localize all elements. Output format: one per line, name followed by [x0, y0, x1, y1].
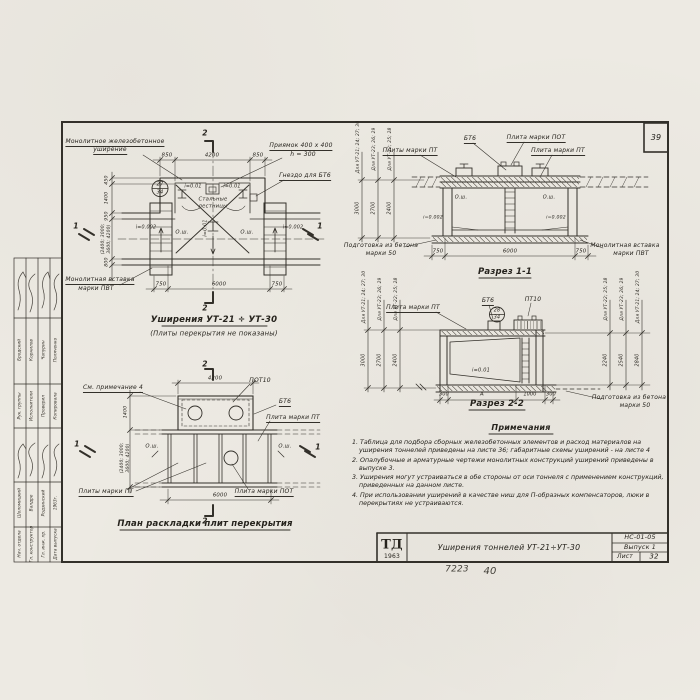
title-block-sheet-label: Лист [617, 554, 633, 560]
dim-a-s22: А [480, 392, 484, 398]
label-pot-plan: Плита марки ПОТ [235, 489, 294, 497]
slope-wall-right: i=0.002 [283, 227, 304, 232]
dim-6000-s11: 6000 [503, 249, 517, 254]
note-item-1: 1. Таблица для подбора сборных железобет… [352, 439, 670, 456]
label-bt6-s11: БТ6 [464, 136, 476, 144]
slope-label-s22: i=0.01 [472, 369, 490, 374]
dim-6000-plan: 6000 [213, 493, 227, 498]
stamp-role-5: Нач. отдела [18, 530, 23, 557]
chain-label-3-s11: Для УТ-22; 25; 28 [389, 127, 393, 170]
section-mark-1-left-plan: 1 [74, 440, 79, 448]
label-pot10: ПОТ10 [249, 378, 271, 384]
logo-td: ТД [381, 539, 403, 552]
slope-label-left: i=0.01 [184, 186, 201, 191]
label-pot-s11: Плита марки ПОТ [507, 135, 566, 143]
stamp-name-2: Корнилов [30, 339, 35, 361]
slope-wall-left: i=0.002 [136, 227, 157, 232]
corner-page-number: 39 [651, 134, 662, 142]
dim-bot-6000: 6000 [212, 282, 226, 287]
footer-number-2: 40 [483, 567, 496, 577]
dim-left-1400: 1400 [106, 192, 111, 205]
stamp-role-8: Дата выпуска [54, 528, 59, 559]
dim-widths-line2-plan: 3600; 4200) [127, 443, 131, 472]
chain-value-3000-s11: 3000 [357, 201, 362, 214]
chain-left-value-1-s22: 3000 [363, 353, 368, 366]
axis-mark-right-plan: О.ш. [278, 444, 291, 449]
chain-right-value-3-s22: 2840 [637, 353, 642, 366]
dim-top-850-right: 850 [253, 153, 264, 158]
label-pt-right-s11: Плита марки ПТ [531, 148, 585, 156]
dim-top-850-left: 850 [162, 153, 173, 158]
detail-marker-number-s22: 28 [494, 309, 501, 314]
dim-bot-750-right: 750 [272, 282, 283, 287]
axis-mark-right: О.ш. [240, 230, 253, 235]
chain-left-label-2-s22: Для УТ-23; 26; 29 [379, 277, 383, 320]
section-mark-1-left: 1 [73, 222, 78, 230]
chain-label-2-s11: Для УТ-23; 26; 29 [373, 127, 377, 170]
label-insert-line2-s11: марки ПВТ [613, 251, 649, 257]
dim-left-450: 450 [106, 175, 111, 184]
axis-mark-left-s11: О.ш. [455, 196, 468, 201]
chain-left-label-1-s22: Для УТ-21; 24; 27; 30 [363, 271, 367, 323]
slab-hatch-1-1 [441, 177, 579, 187]
dim-bot-750-left: 750 [156, 282, 167, 287]
stamp-role-7: Гл. инж. пр. [42, 531, 47, 558]
label-prep-line2-s11: марки 50 [366, 251, 397, 257]
chain-value-2700-s11: 2700 [373, 201, 378, 214]
stamp-role-6: Гл. конструктор [30, 526, 35, 563]
label-steel-ladders-line1: Стальные [198, 197, 227, 202]
dim-1400-plan: 1400 [125, 406, 130, 419]
chain-right-label-2-s22: Для УТ-23; 26; 29 [621, 277, 625, 320]
dim-left-950: 950 [106, 211, 111, 220]
dim-left-800: 800 [106, 257, 111, 266]
stamp-name-5: Шоломицкий [18, 488, 23, 518]
footer-number: 7223 [445, 566, 469, 575]
label-prep-line1-s11: Подготовка из бетона [344, 243, 418, 249]
base-hatch-1-1 [433, 237, 587, 242]
label-see-note: См. примечание 4 [83, 385, 143, 393]
label-prep-line1-s22: Подготовка из бетона [592, 395, 666, 401]
logo-year: 1963 [384, 554, 400, 560]
title-block-sheet-number: 32 [649, 554, 658, 561]
dim-left-widths-line1: (2400; 3000; [102, 224, 106, 255]
detail-marker-sheet: 34 [157, 190, 164, 195]
label-insert-line1: Монолитная вставка [65, 277, 134, 285]
section-mark-1-right-plan: 1 [315, 443, 320, 451]
drawing-sheet: Монолитное железобетонное уширение Приям… [0, 0, 700, 700]
plan-slabs-title: План раскладки плит перекрытия [117, 520, 292, 529]
dim-top-4200: 4200 [205, 153, 219, 158]
label-bt6-plan: БТ6 [279, 399, 291, 407]
stamp-role-3: Проверил [42, 395, 47, 417]
slab-hatch-2-2 [441, 331, 544, 335]
chain-right-label-3-s22: Для УТ-21; 24; 27; 30 [637, 271, 641, 323]
note-item-4: 4. При использовании уширений в качестве… [352, 492, 670, 509]
dim-widths-line1-plan: (2400; 3000; [121, 443, 125, 474]
pt10-hatch [515, 321, 541, 329]
chain-value-2400-s11: 2400 [389, 201, 394, 214]
stamp-role-4: Копировала [54, 392, 59, 419]
notes-block: 1. Таблица для подбора сборных железобет… [352, 439, 670, 509]
title-block-issue: Выпуск 1 [624, 544, 656, 550]
label-socket-bt6: Гнездо для БТ6 [279, 173, 331, 181]
detail-marker-number: 27 [157, 183, 164, 188]
stamp-name-7: Родзинский [42, 490, 47, 517]
dim-4200-plan: 4200 [208, 376, 222, 381]
label-pt-plural-plan: Плиты марки ПТ [79, 489, 134, 497]
label-pt10-s22: ПТ10 [525, 297, 542, 303]
stamp-name-1: Бродский [18, 339, 23, 361]
chain-left-label-3-s22: Для УТ-22; 25; 28 [395, 277, 399, 320]
dim-left-widths-line2: 3600; 4200) [108, 224, 112, 253]
label-pt-plan: Плита марки ПТ [266, 415, 320, 423]
section-mark-2-top-plan: 2 [202, 360, 207, 368]
note-item-3: 3. Уширения могут устраиваться в обе сто… [352, 474, 670, 491]
stamp-name-6: Валдре [30, 495, 35, 512]
base-hatch-2-2 [437, 386, 555, 391]
note-item-2: 2. Опалубочные и арматурные чертежи моно… [352, 457, 670, 474]
label-steel-ladders-line2: лестницы [199, 204, 228, 209]
dim-750-left-s11: 750 [433, 249, 444, 254]
plan-widening-subtitle: (Плиты перекрытия не показаны) [150, 331, 277, 338]
label-pit-line1: Приямок 400 x 400 [269, 143, 332, 151]
chain-right-value-2-s22: 2540 [621, 353, 626, 366]
stamp-name-8: 1963г. [54, 496, 59, 511]
slope-label-axis: i=0.01 [205, 219, 210, 236]
axis-mark-left-plan: О.ш. [145, 444, 158, 449]
slope-right-s11: i=0.002 [546, 217, 566, 222]
plan-widening-drawing [79, 141, 324, 326]
detail-marker-sheet-s22: 34 [494, 316, 501, 321]
notes-heading: Примечания [491, 424, 550, 432]
stamp-role-1: Рук. группы [18, 392, 23, 419]
slope-left-s11: i=0.002 [423, 217, 443, 222]
title-block-title: Уширения тоннелей УТ-21÷УТ-30 [438, 544, 581, 552]
axis-mark-right-s11: О.ш. [543, 196, 556, 201]
label-pit-line2: h = 300 [290, 152, 316, 158]
axis-mark-left: О.ш. [175, 230, 188, 235]
dim-750-right-s11: 750 [576, 249, 587, 254]
section-mark-1-right: 1 [317, 222, 322, 230]
stamp-name-3: Чапурин [42, 340, 47, 359]
signatures [18, 272, 59, 478]
chain-right-value-1-s22: 2240 [605, 353, 610, 366]
title-block-code: НС-01-05 [624, 535, 655, 541]
stamp-role-2: Исполнители [30, 391, 35, 421]
label-prep-line2-s22: марки 50 [620, 403, 651, 409]
dim-300-left-s22: 300 [439, 394, 449, 399]
label-monolithic-widening-line2: уширение [93, 147, 127, 155]
section-2-2-title: Разрез 2-2 [470, 400, 524, 409]
plan-widening-title: Уширения УТ-21 ÷ УТ-30 [151, 316, 278, 325]
chain-left-value-3-s22: 2400 [395, 353, 400, 366]
dim-300-right-s22: 300 [546, 394, 556, 399]
section-mark-2-bottom: 2 [202, 304, 207, 312]
chain-right-label-1-s22: Для УТ-22; 25; 28 [605, 277, 609, 320]
label-insert-line1-s11: Монолитная вставка [590, 243, 659, 249]
section-1-1-drawing [358, 142, 648, 278]
stamp-name-4: Поляченко [54, 338, 59, 362]
section-mark-2-top: 2 [202, 129, 207, 137]
section-1-1-title: Разрез 1-1 [478, 268, 532, 277]
chain-left-value-2-s22: 2700 [379, 353, 384, 366]
dim-1000-s22: 1000 [523, 394, 536, 399]
chain-label-1-s11: Для УТ-21; 24; 27; 30 [357, 121, 361, 173]
label-insert-line2: марки ПВТ [78, 286, 114, 292]
slope-label-right: i=0.01 [223, 186, 240, 191]
label-bt6-s22: БТ6 [482, 298, 494, 306]
